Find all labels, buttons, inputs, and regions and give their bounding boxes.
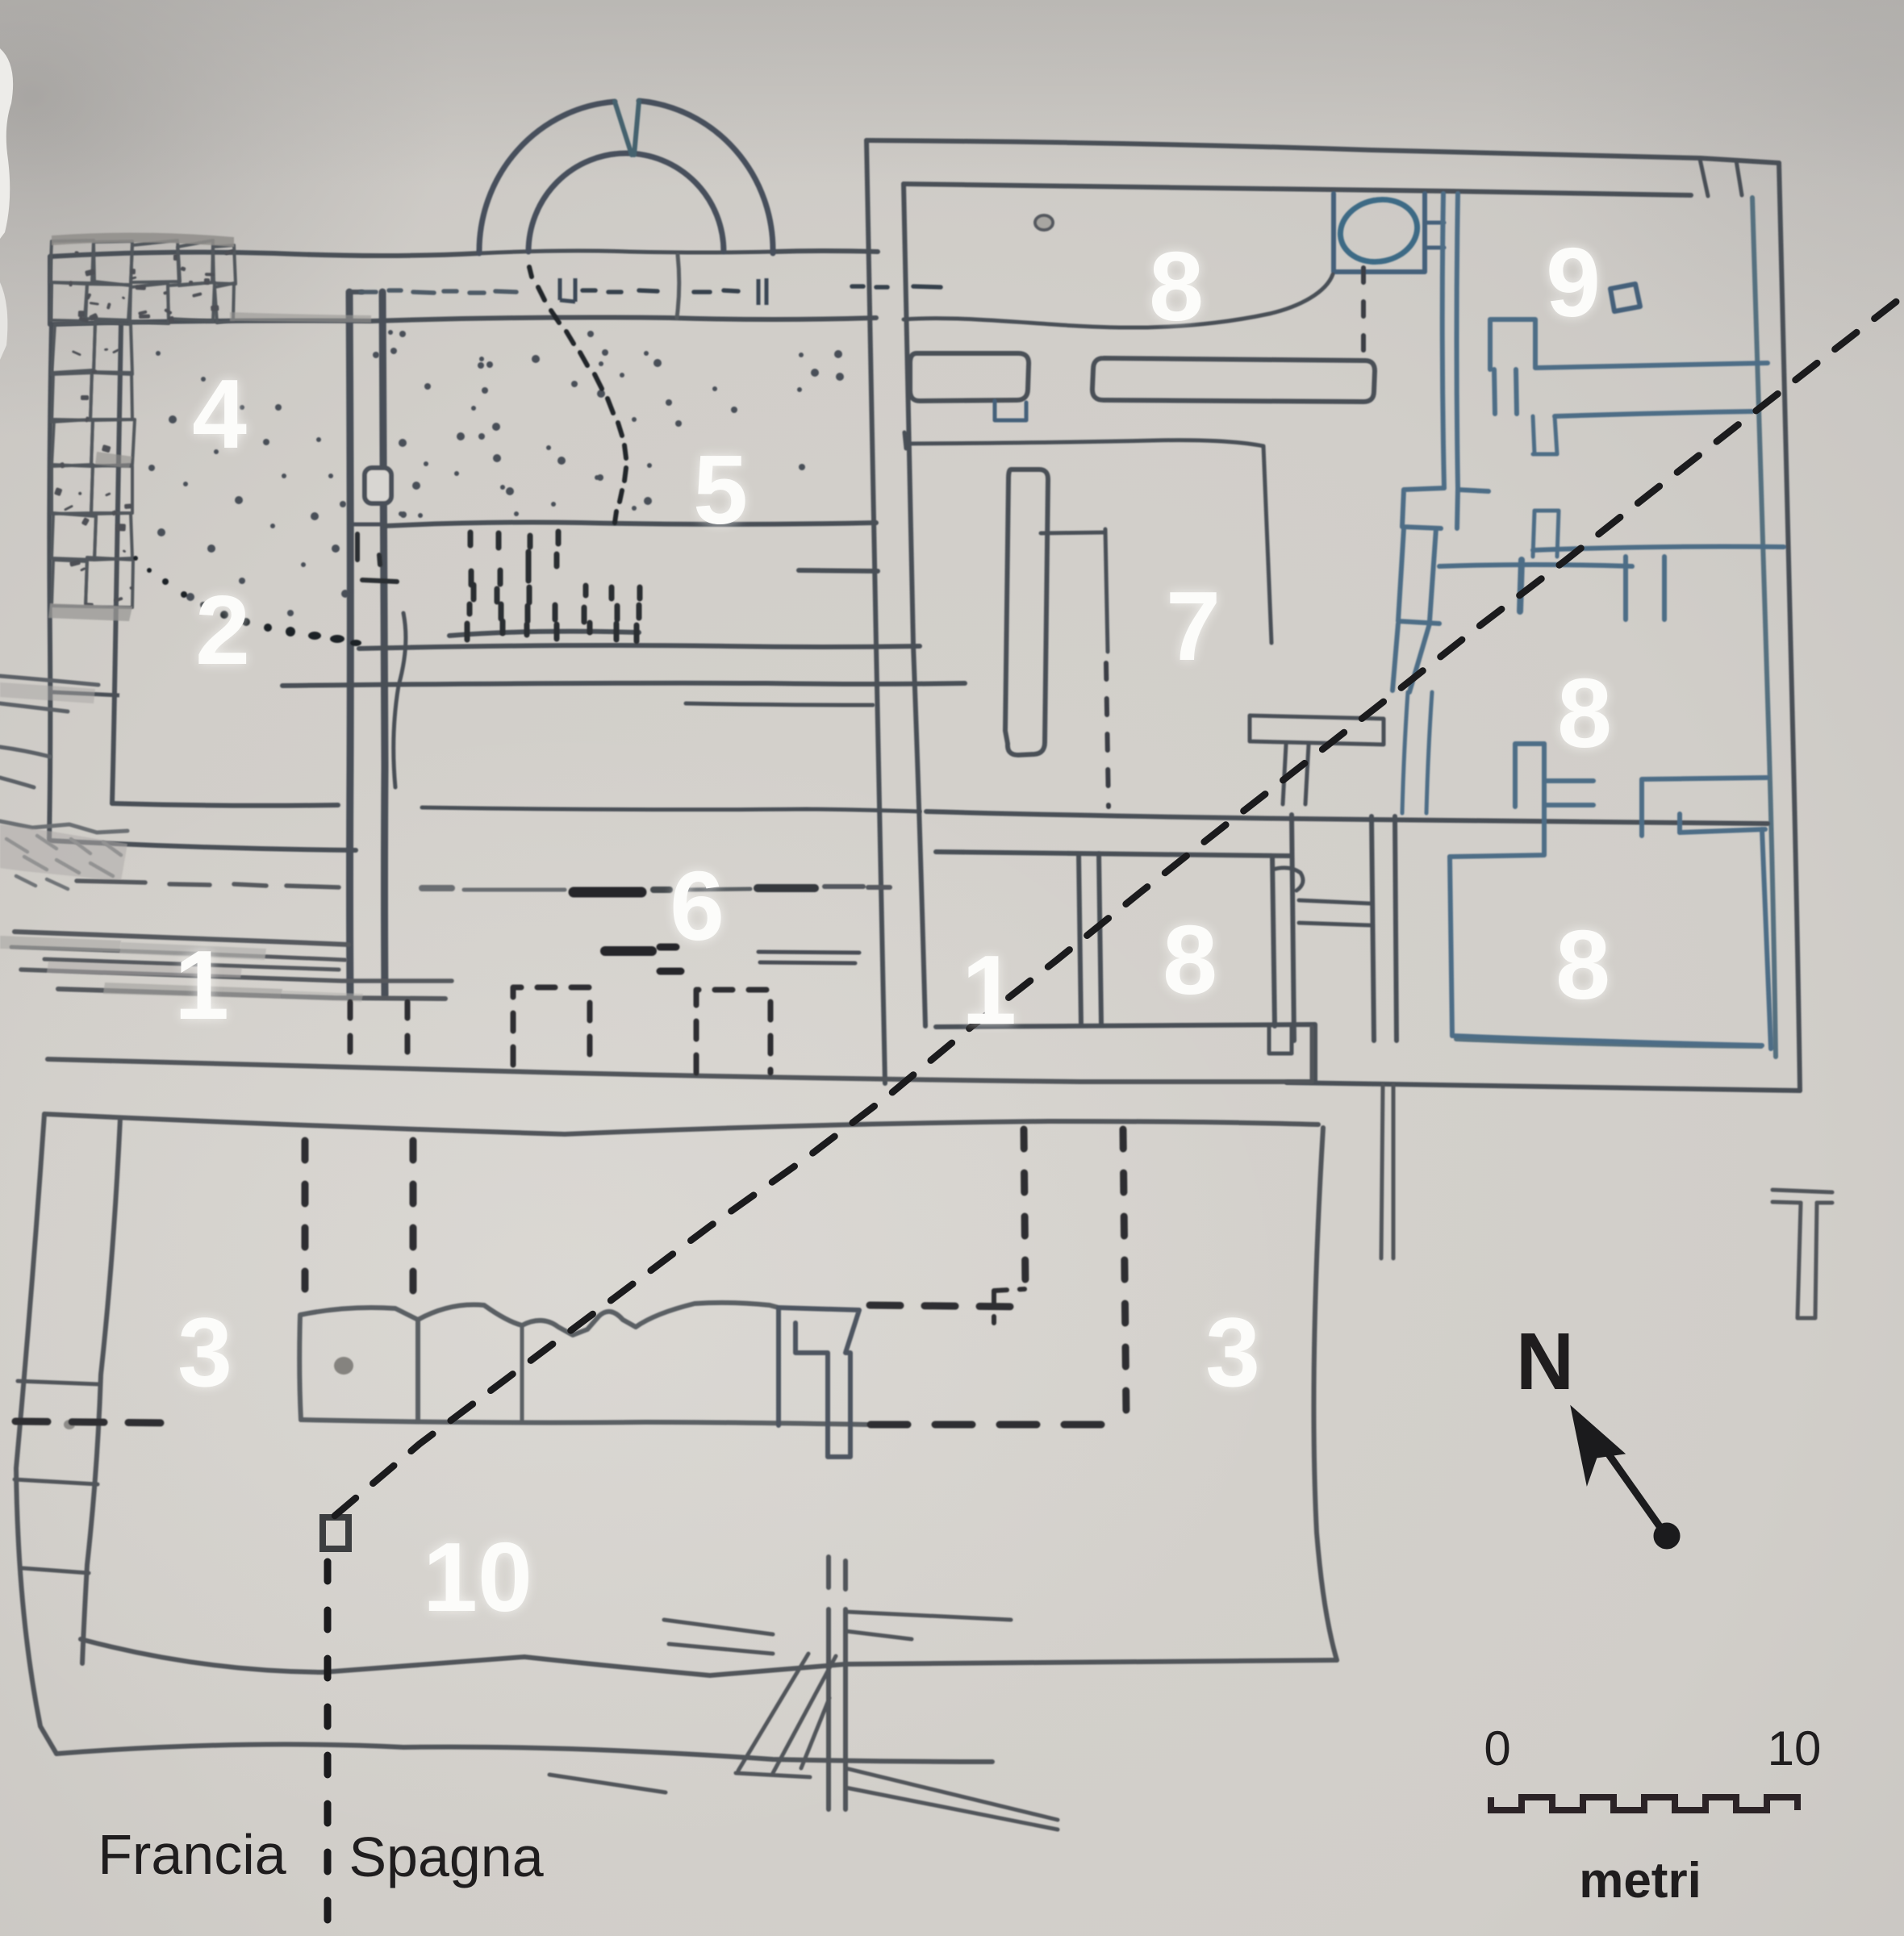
svg-text:3: 3 <box>1205 1297 1260 1407</box>
svg-text:N: N <box>1516 1316 1574 1407</box>
svg-text:8: 8 <box>1149 232 1204 341</box>
svg-text:Francia: Francia <box>98 1823 286 1886</box>
svg-text:8: 8 <box>1555 910 1610 1020</box>
svg-text:10: 10 <box>1768 1721 1822 1775</box>
svg-text:0: 0 <box>1484 1721 1510 1775</box>
svg-text:metri: metri <box>1579 1853 1701 1909</box>
svg-text:8: 8 <box>1163 905 1217 1015</box>
svg-text:5: 5 <box>693 435 748 544</box>
svg-text:8: 8 <box>1557 658 1612 768</box>
svg-text:4: 4 <box>192 359 247 469</box>
svg-text:Spagna: Spagna <box>349 1825 543 1888</box>
svg-text:7: 7 <box>1166 571 1221 681</box>
svg-text:10: 10 <box>423 1522 532 1632</box>
svg-text:9: 9 <box>1546 227 1601 337</box>
svg-text:2: 2 <box>195 575 250 685</box>
svg-text:1: 1 <box>962 935 1017 1045</box>
svg-text:6: 6 <box>670 851 724 961</box>
svg-text:3: 3 <box>177 1297 232 1407</box>
svg-text:1: 1 <box>174 930 229 1040</box>
